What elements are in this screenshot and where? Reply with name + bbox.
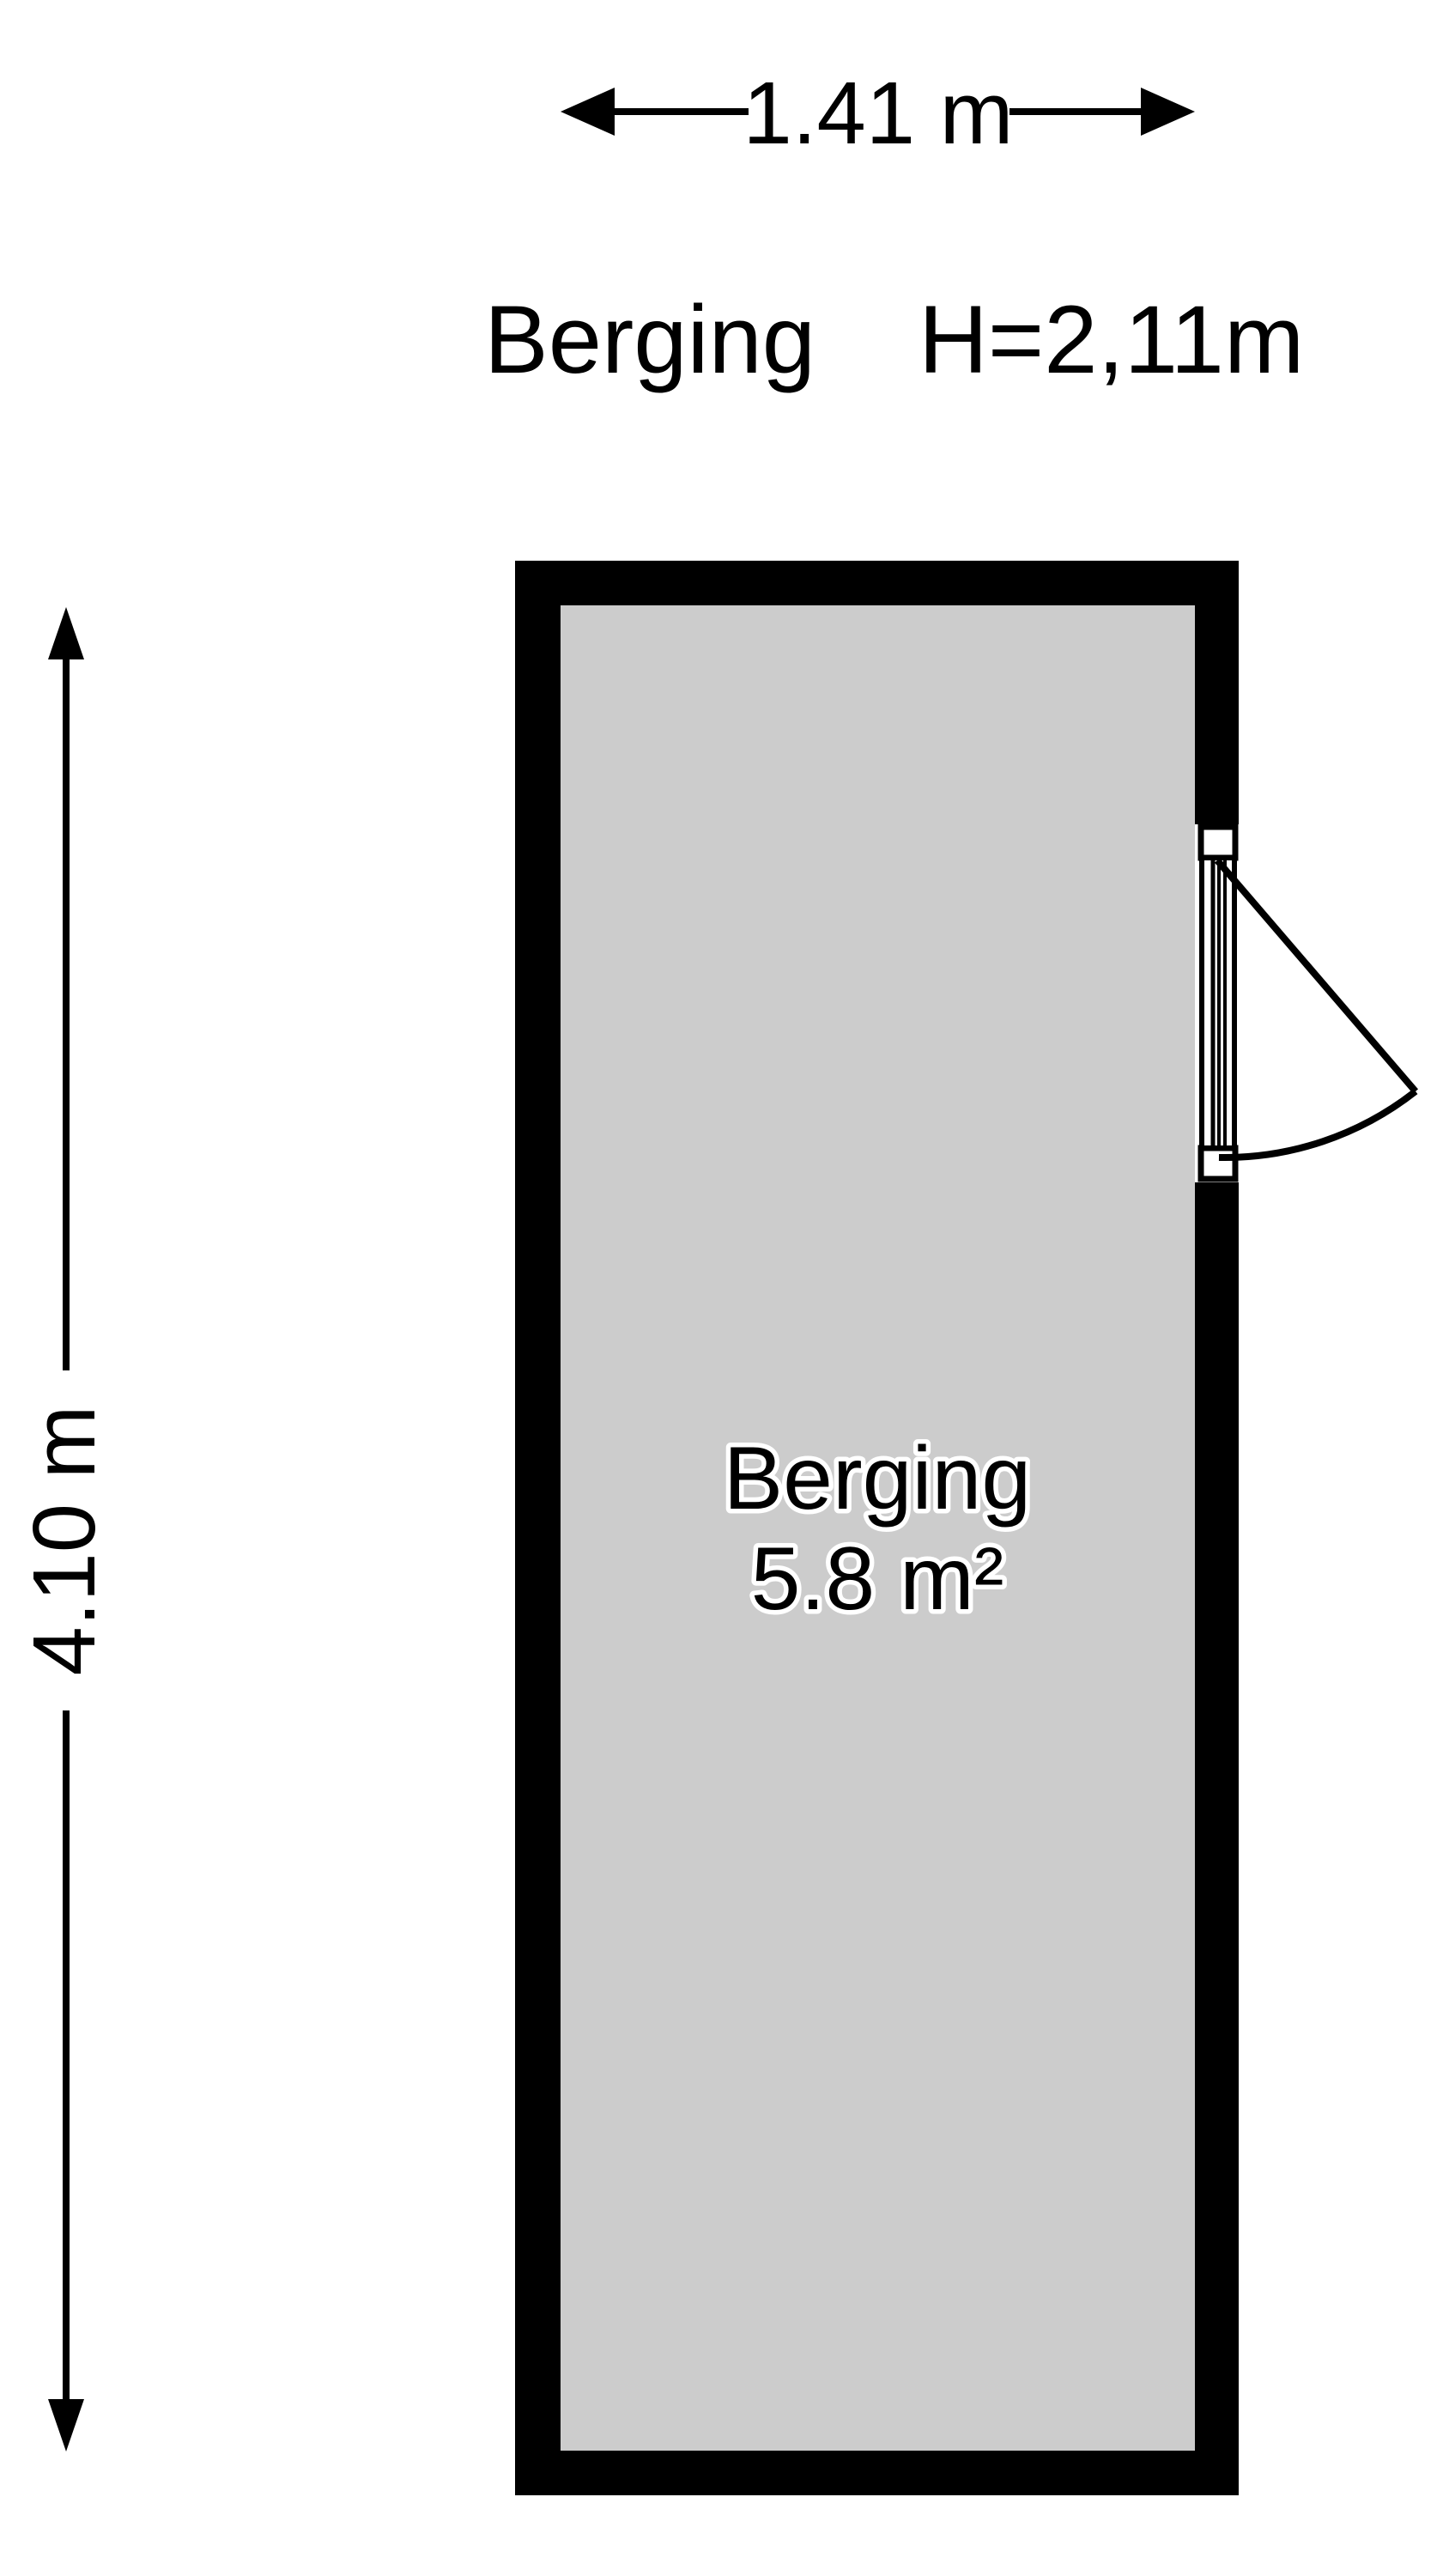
door [1195,824,1416,1182]
room-name-label: Berging [724,1429,1031,1528]
plan-header: Berging H=2,11m [484,286,1304,393]
arrowhead-right-icon [1141,88,1195,136]
door-jamb-top [1201,827,1235,858]
door-swing-arc [1219,1091,1416,1157]
arrowhead-up-icon [48,607,84,659]
arrowhead-down-icon [48,2399,84,2451]
door-swing-line [1217,860,1416,1091]
room-label: Berging 5.8 m² [724,1429,1031,1629]
floorplan-page: 1.41 m Berging H=2,11m 4.10 m [0,0,1449,2576]
room-plan: Berging 5.8 m² [515,561,1416,2495]
arrowhead-left-icon [561,88,615,136]
room-title: Berging [484,286,815,393]
height-dimension-label: 4.10 m [15,1406,113,1676]
ceiling-height-label: H=2,11m [919,286,1304,393]
room-area-label: 5.8 m² [751,1529,1004,1629]
floorplan-canvas: 1.41 m Berging H=2,11m 4.10 m [0,0,1449,2576]
width-dimension-label: 1.41 m [743,64,1014,162]
width-dimension: 1.41 m [561,64,1195,162]
door-jamb-bottom [1201,1148,1235,1179]
height-dimension: 4.10 m [15,607,113,2451]
